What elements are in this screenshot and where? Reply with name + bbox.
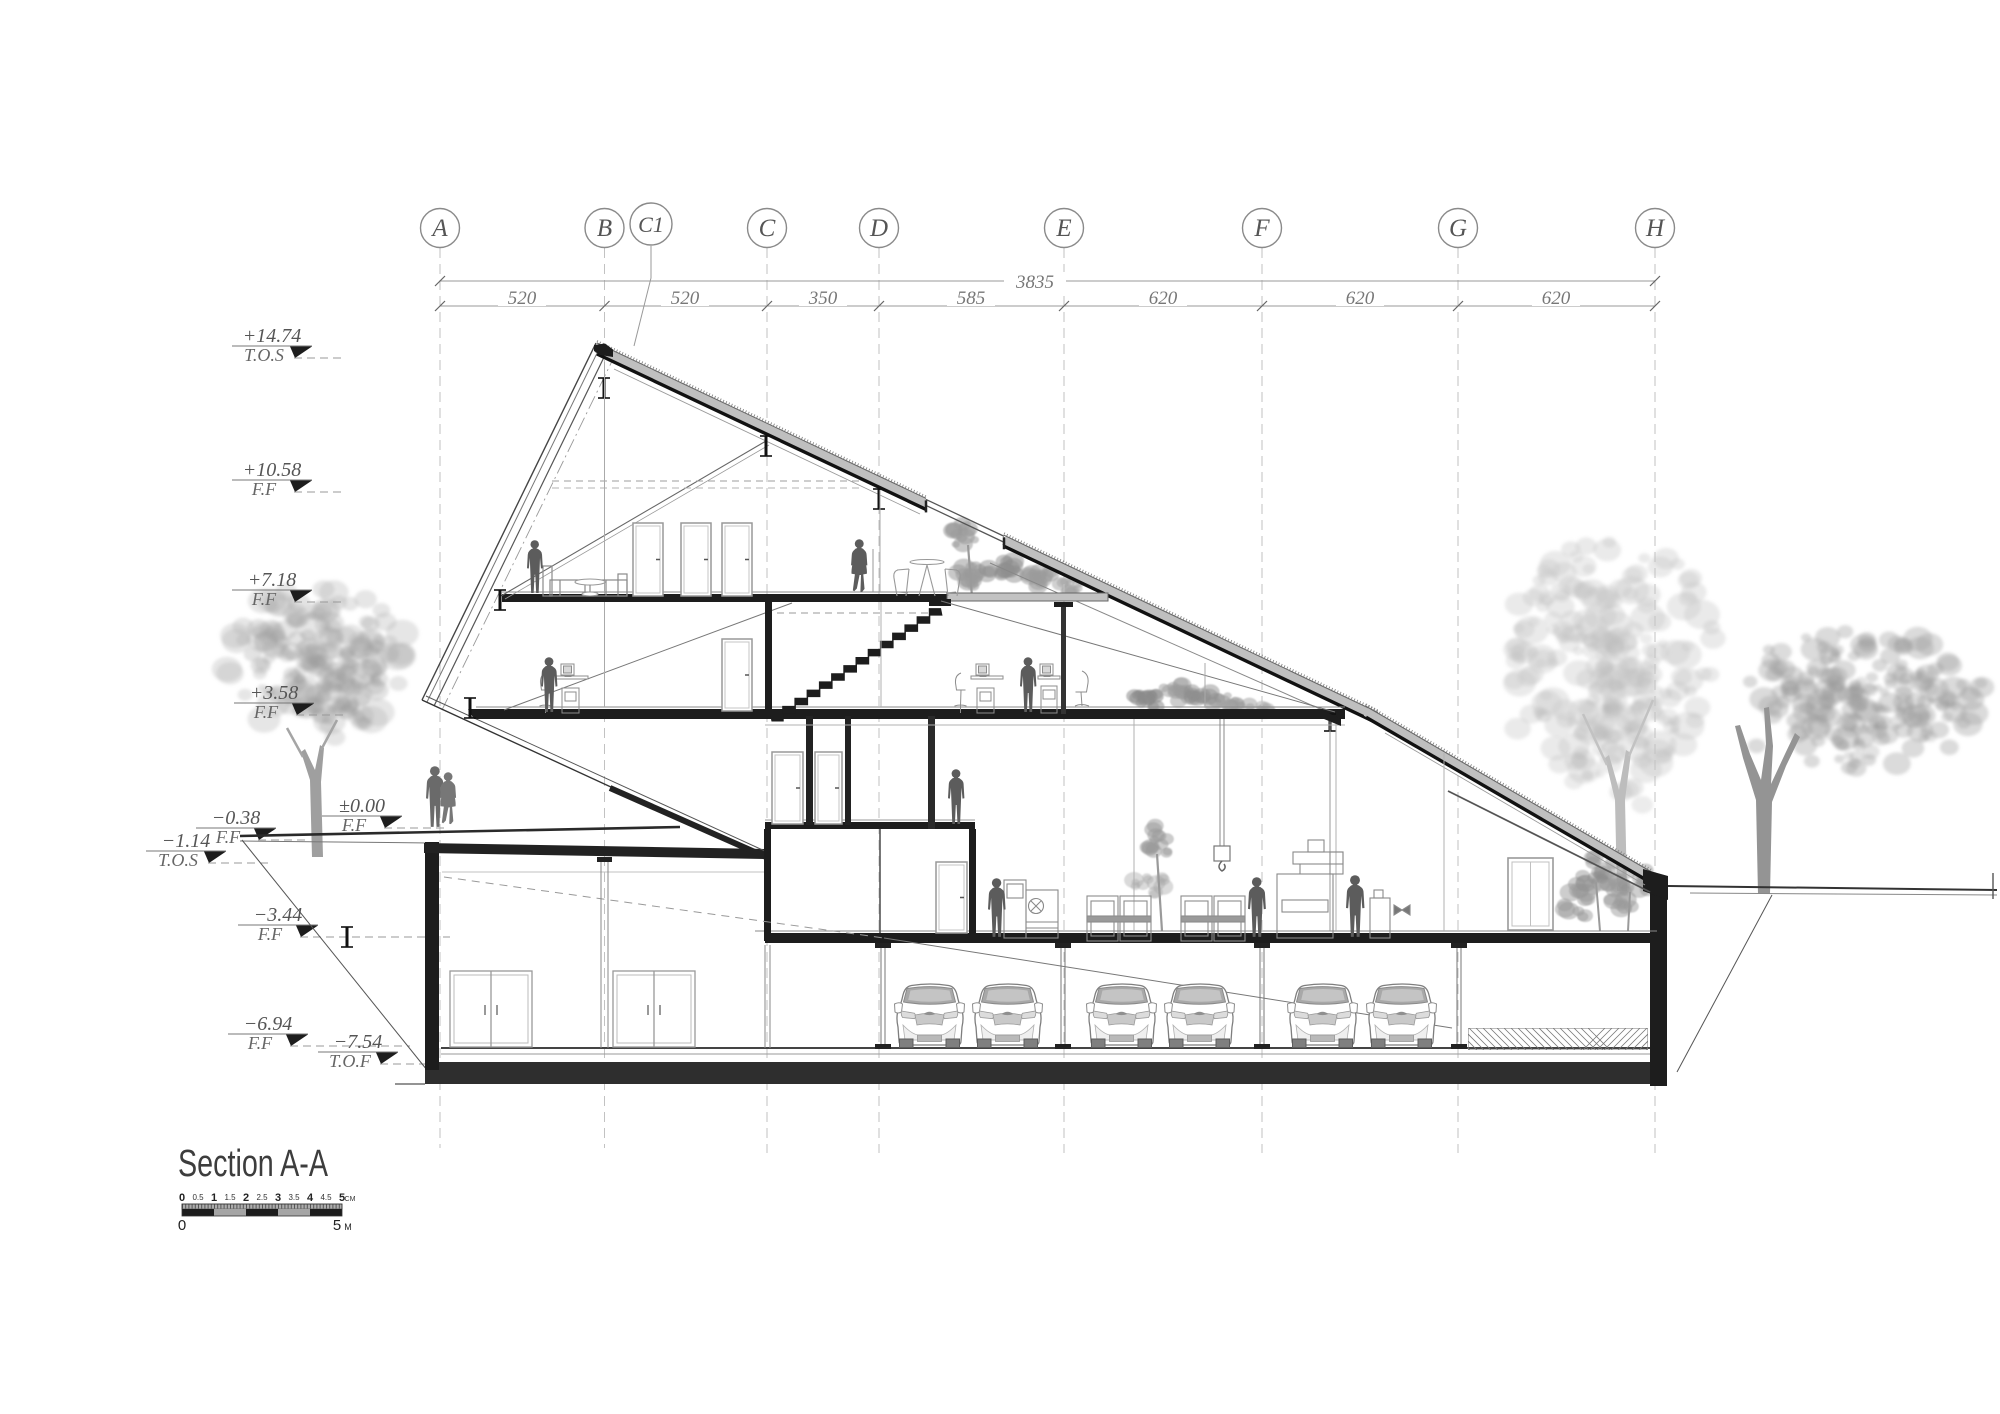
svg-text:−1.14: −1.14 [162, 830, 211, 852]
svg-text:1.5: 1.5 [224, 1193, 236, 1202]
svg-text:M: M [344, 1222, 352, 1232]
svg-text:F.F: F.F [341, 815, 367, 835]
svg-text:5: 5 [333, 1217, 341, 1234]
svg-text:Section A-A: Section A-A [178, 1143, 328, 1185]
svg-text:620: 620 [1542, 288, 1571, 309]
svg-text:4.5: 4.5 [320, 1193, 332, 1202]
svg-text:±0.00: ±0.00 [339, 795, 385, 817]
svg-text:D: D [869, 215, 888, 242]
svg-text:0: 0 [179, 1192, 185, 1204]
svg-text:F.F: F.F [251, 479, 277, 499]
svg-text:0: 0 [178, 1217, 186, 1234]
svg-text:350: 350 [808, 288, 838, 309]
svg-text:620: 620 [1149, 288, 1178, 309]
svg-text:1: 1 [211, 1192, 217, 1204]
svg-text:B: B [597, 215, 612, 242]
svg-text:CM: CM [345, 1196, 356, 1203]
svg-text:−0.38: −0.38 [212, 807, 261, 829]
svg-text:+3.58: +3.58 [250, 682, 299, 704]
svg-text:F.F: F.F [251, 589, 277, 609]
svg-text:T.O.S: T.O.S [158, 850, 198, 870]
svg-text:+14.74: +14.74 [243, 325, 302, 347]
svg-text:F.F: F.F [253, 702, 279, 722]
svg-text:3.5: 3.5 [288, 1193, 300, 1202]
svg-text:+10.58: +10.58 [243, 459, 302, 481]
svg-text:T.O.F: T.O.F [329, 1051, 372, 1071]
svg-text:3835: 3835 [1015, 272, 1054, 293]
svg-text:C: C [759, 215, 776, 242]
svg-text:520: 520 [671, 288, 700, 309]
svg-text:F: F [1253, 215, 1270, 242]
svg-text:−6.94: −6.94 [244, 1013, 293, 1035]
svg-text:620: 620 [1346, 288, 1375, 309]
svg-text:−7.54: −7.54 [334, 1031, 383, 1053]
svg-text:C1: C1 [638, 212, 664, 237]
svg-text:F.F: F.F [215, 827, 241, 847]
svg-text:G: G [1449, 215, 1467, 242]
svg-text:E: E [1055, 215, 1071, 242]
svg-text:520: 520 [508, 288, 537, 309]
svg-text:585: 585 [957, 288, 986, 309]
svg-text:4: 4 [307, 1192, 314, 1204]
svg-text:T.O.S: T.O.S [244, 345, 284, 365]
svg-text:A: A [430, 215, 448, 242]
svg-text:F.F: F.F [257, 924, 283, 944]
svg-text:2: 2 [243, 1192, 249, 1204]
svg-text:2.5: 2.5 [256, 1193, 268, 1202]
svg-text:F.F: F.F [247, 1033, 273, 1053]
svg-text:3: 3 [275, 1192, 281, 1204]
svg-text:+7.18: +7.18 [248, 569, 297, 591]
svg-text:H: H [1645, 215, 1666, 242]
svg-text:0.5: 0.5 [192, 1193, 204, 1202]
svg-text:−3.44: −3.44 [254, 904, 303, 926]
